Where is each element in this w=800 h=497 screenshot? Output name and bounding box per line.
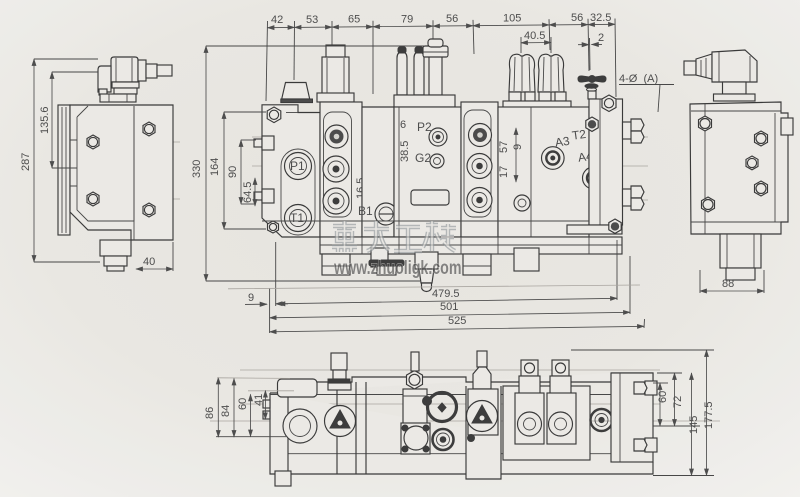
svg-text:177.5: 177.5	[703, 401, 715, 429]
svg-text:56: 56	[446, 13, 458, 25]
svg-text:B1: B1	[358, 204, 373, 218]
svg-text:P1: P1	[290, 159, 305, 173]
svg-text:287: 287	[20, 153, 32, 171]
svg-text:90: 90	[227, 166, 239, 178]
svg-text:9: 9	[248, 292, 254, 304]
svg-text:79: 79	[401, 14, 413, 26]
svg-text:135.6: 135.6	[39, 106, 51, 134]
svg-text:40: 40	[143, 256, 155, 268]
svg-text:60: 60	[657, 391, 669, 403]
svg-text:145: 145	[688, 416, 700, 434]
svg-text:65: 65	[348, 14, 360, 26]
svg-text:www.zhuoligk.com: www.zhuoligk.com	[333, 257, 461, 279]
svg-text:9: 9	[512, 144, 524, 150]
svg-text:4-Ø (A): 4-Ø (A)	[619, 73, 658, 85]
svg-text:86: 86	[204, 407, 216, 419]
svg-text:G2: G2	[415, 151, 431, 165]
svg-text:6: 6	[400, 119, 406, 131]
svg-text:56: 56	[571, 12, 583, 24]
svg-text:72: 72	[672, 396, 684, 408]
svg-text:41: 41	[253, 394, 265, 406]
svg-text:525: 525	[448, 315, 466, 327]
svg-text:164: 164	[209, 158, 221, 176]
svg-text:330: 330	[191, 160, 203, 178]
svg-text:T1: T1	[290, 211, 304, 225]
svg-text:64.5: 64.5	[242, 182, 254, 203]
svg-text:38.5: 38.5	[399, 141, 411, 162]
svg-text:53: 53	[306, 14, 318, 26]
svg-text:17: 17	[498, 166, 510, 178]
svg-text:60: 60	[237, 398, 249, 410]
svg-text:84: 84	[220, 405, 232, 417]
svg-text:T2: T2	[571, 127, 587, 143]
svg-text:42: 42	[271, 14, 283, 26]
svg-text:2: 2	[598, 32, 604, 44]
svg-text:88: 88	[722, 278, 734, 290]
svg-text:A3: A3	[554, 134, 571, 150]
svg-text:105: 105	[503, 13, 521, 25]
svg-text:40.5: 40.5	[524, 30, 545, 42]
svg-text:501: 501	[440, 301, 458, 313]
svg-text:479.5: 479.5	[432, 288, 460, 300]
svg-text:32.5: 32.5	[590, 12, 611, 24]
svg-text:P2: P2	[417, 120, 432, 134]
svg-text:57: 57	[498, 141, 510, 153]
